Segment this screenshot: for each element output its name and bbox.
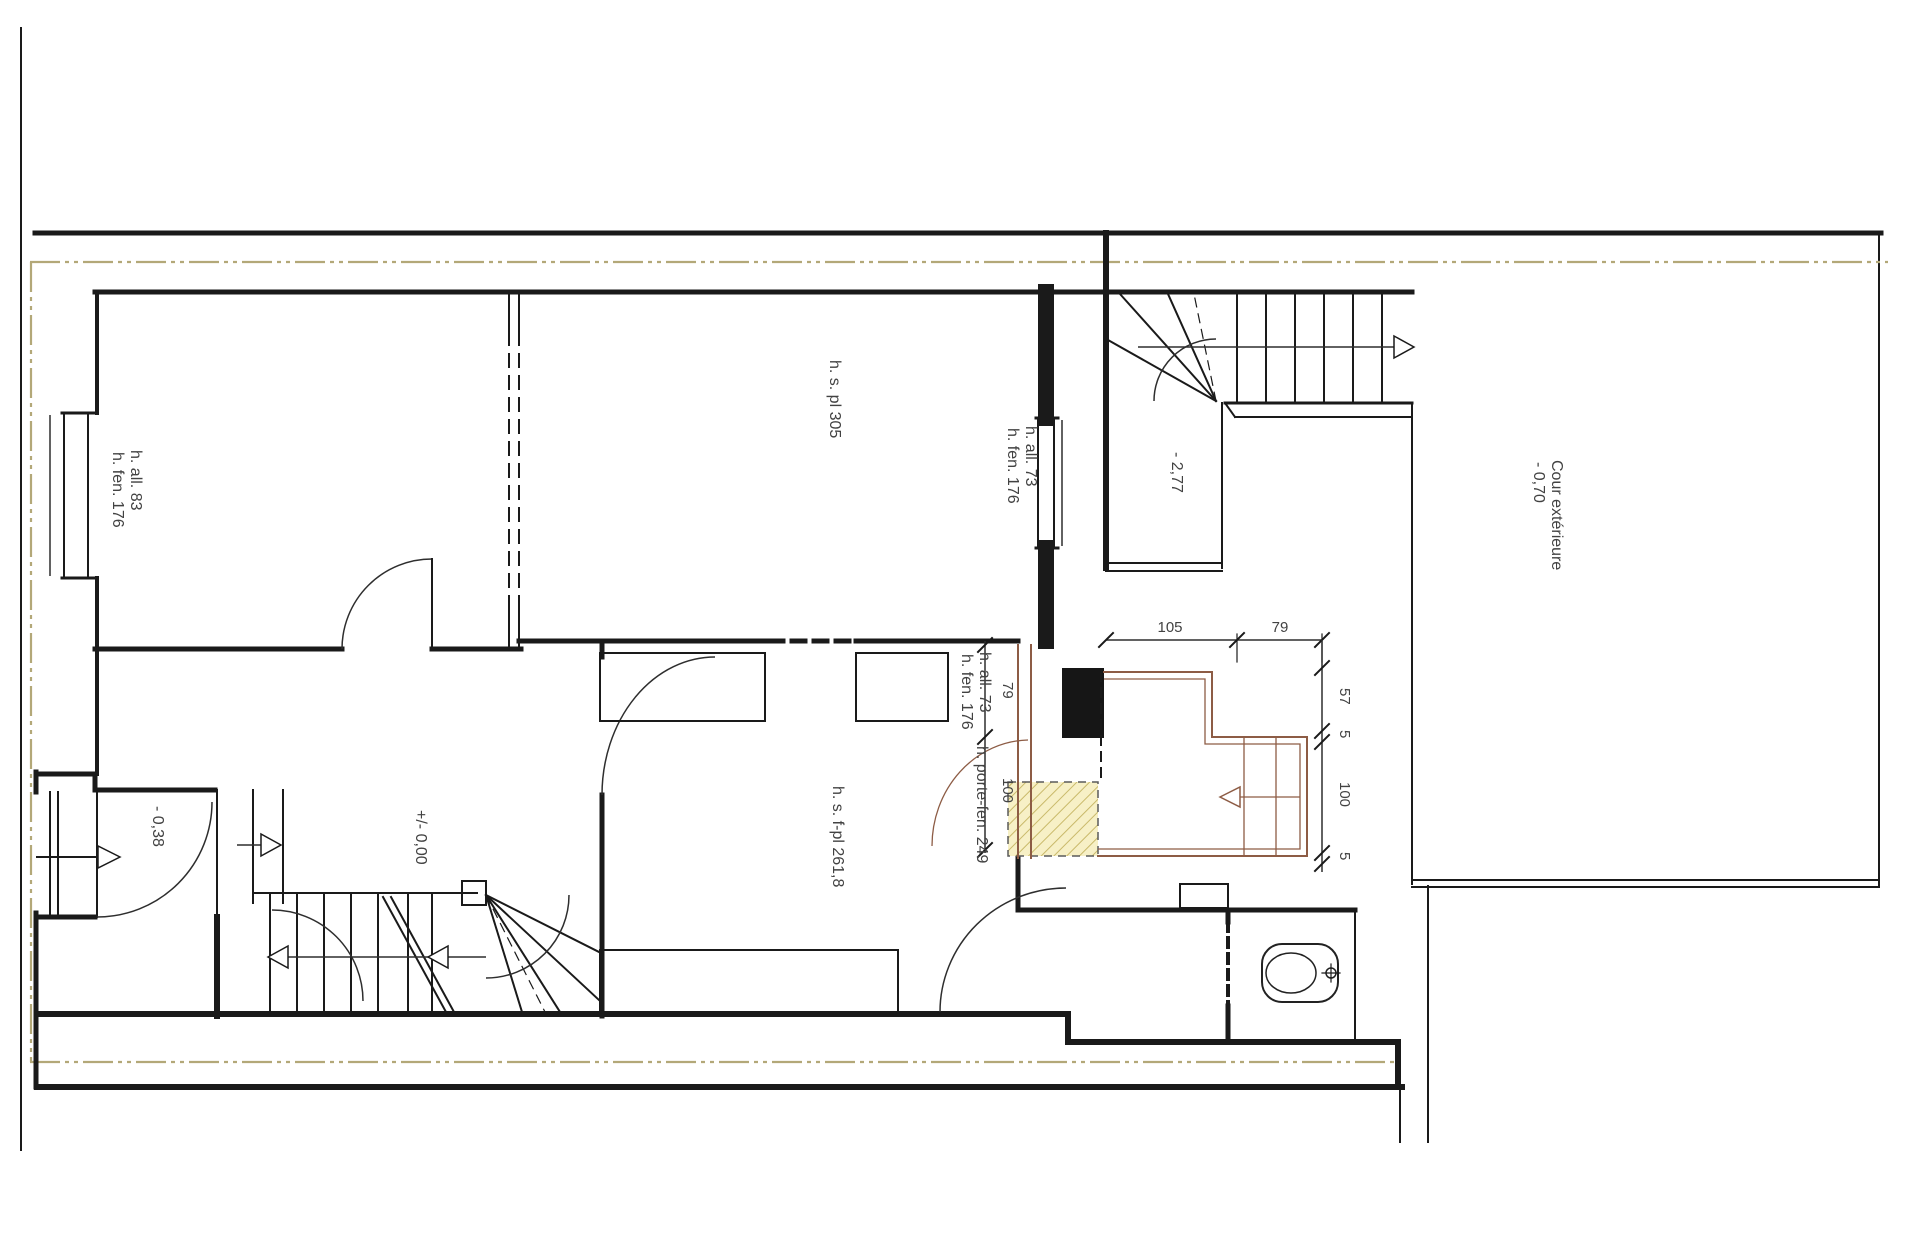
door-kitchen-west-arc: [602, 657, 715, 795]
door-kitchen-corridor-arc: [940, 888, 1066, 1012]
courtyard-level-label: - 0,70: [1530, 462, 1547, 503]
masonry-pier: [1062, 668, 1104, 738]
toilet-icon: [1262, 944, 1340, 1002]
courtyard-label: Cour extérieure: [1548, 460, 1565, 570]
kitchen-window-label: h. fen. 176: [958, 654, 975, 730]
room2-window-label: h. fen. 176: [1004, 428, 1021, 504]
lower-staircase: [255, 881, 599, 1012]
room2-window-label: h. all. 73: [1022, 426, 1039, 487]
dim-105: 105: [1157, 619, 1182, 636]
hall-steps: [237, 790, 283, 903]
dim-57: 57: [1336, 688, 1353, 705]
exterior-walls: [36, 233, 1412, 1087]
dim-5: 5: [1336, 730, 1353, 738]
door-room1: [342, 559, 432, 649]
dim-100: 100: [1336, 782, 1353, 807]
floor-plan-drawing: h. all. 83 h. fen. 176 h. s. pl 305 h. a…: [0, 0, 1920, 1240]
hall-level-label: +/- 0,00: [412, 810, 429, 865]
stair-direction-arrow-icon: [1394, 336, 1414, 358]
room1-window-label: h. all. 83: [127, 450, 144, 511]
property-boundary: [21, 28, 1888, 1150]
entry-level-label: - 0,38: [149, 806, 166, 847]
kitchen-window-label: h. all. 73: [976, 652, 993, 713]
floor-plan-canvas: h. all. 83 h. fen. 176 h. s. pl 305 h. a…: [0, 0, 1920, 1240]
room1-window-label: h. fen. 176: [109, 452, 126, 528]
porte-fenetre-label: h. porte-fen. 249: [973, 746, 990, 864]
stairwell-level-label: - 2,77: [1168, 452, 1185, 493]
entry-direction-arrow-icon: [98, 846, 120, 868]
interior-walls: [37, 292, 1879, 1042]
dim-bay-100: 100: [999, 778, 1016, 803]
step-direction-arrow-icon: [261, 834, 281, 856]
new-stair-arrow-icon: [1220, 787, 1240, 807]
plan-labels: h. all. 83 h. fen. 176 h. s. pl 305 h. a…: [109, 360, 1565, 887]
dim-bay-79: 79: [999, 682, 1016, 699]
dim-79: 79: [1272, 619, 1289, 636]
fitted-furniture: [600, 653, 948, 1012]
room2-height-label: h. s. pl 305: [826, 360, 843, 438]
main-staircase: [1108, 292, 1414, 417]
entry-door: [37, 790, 212, 917]
kitchen-height-label: h. s. f-pl 261,8: [829, 786, 846, 887]
window-room1-west: [50, 413, 97, 578]
dim-5: 5: [1336, 852, 1353, 860]
hatched-new-element: [1008, 782, 1098, 856]
